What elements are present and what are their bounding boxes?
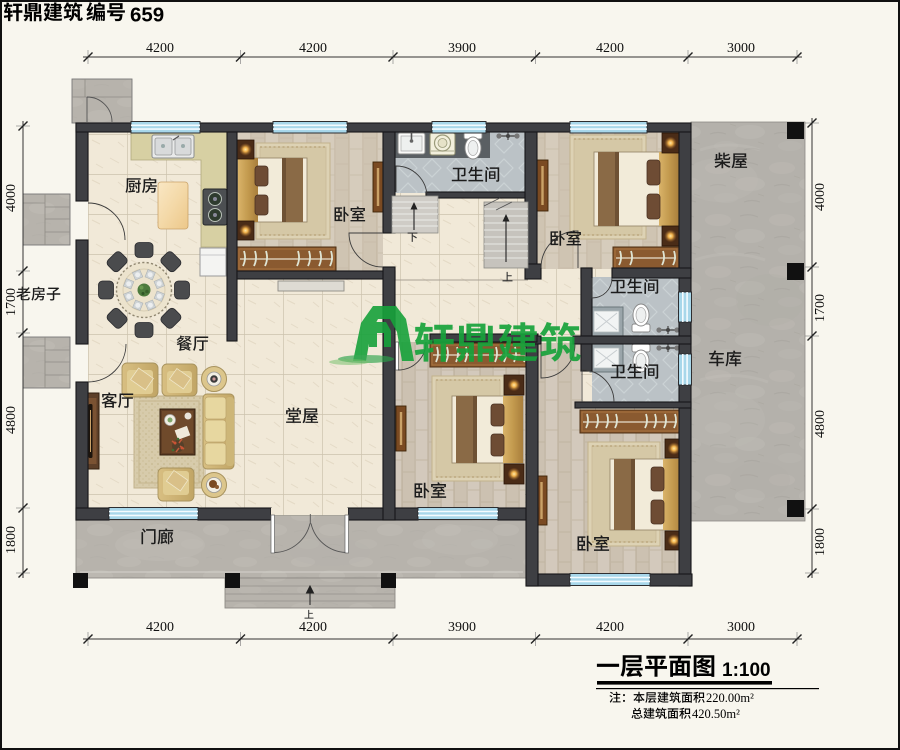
svg-text:1700: 1700	[813, 294, 828, 322]
svg-text:4200: 4200	[299, 620, 327, 635]
svg-text:3000: 3000	[727, 41, 755, 56]
svg-text:4200: 4200	[146, 620, 174, 635]
svg-text:4800: 4800	[4, 406, 19, 434]
svg-text:4200: 4200	[596, 41, 624, 56]
svg-text:659: 659	[130, 4, 164, 27]
svg-text:4800: 4800	[813, 410, 828, 438]
svg-text:4000: 4000	[4, 184, 19, 212]
svg-text:1700: 1700	[4, 288, 19, 316]
svg-text:420.50m²: 420.50m²	[692, 707, 740, 721]
svg-text:3900: 3900	[448, 41, 476, 56]
svg-text:4000: 4000	[813, 183, 828, 211]
svg-text:1800: 1800	[4, 526, 19, 554]
svg-text:3000: 3000	[727, 620, 755, 635]
svg-text:4200: 4200	[146, 41, 174, 56]
svg-text:3900: 3900	[448, 620, 476, 635]
svg-text:1:100: 1:100	[722, 660, 771, 681]
svg-text:220.00m²: 220.00m²	[706, 691, 754, 705]
svg-text:4200: 4200	[299, 41, 327, 56]
svg-text:1800: 1800	[813, 528, 828, 556]
svg-text:4200: 4200	[596, 620, 624, 635]
